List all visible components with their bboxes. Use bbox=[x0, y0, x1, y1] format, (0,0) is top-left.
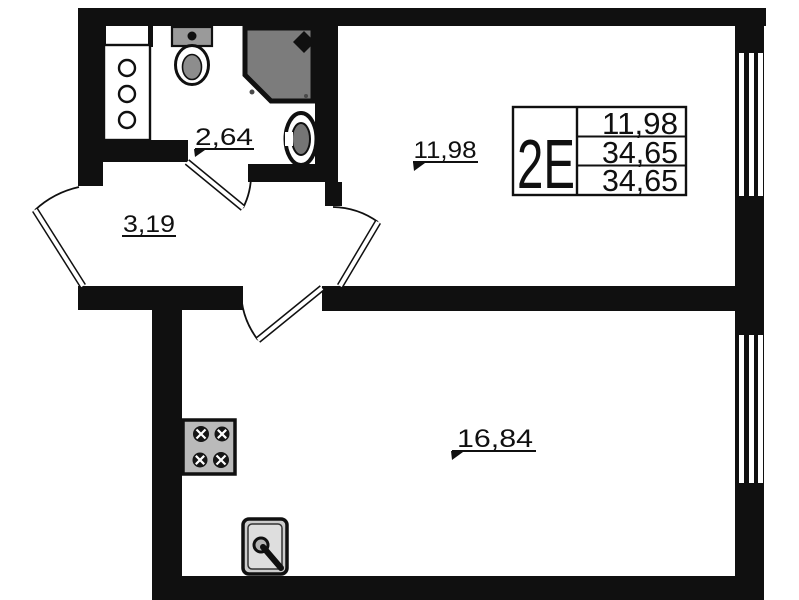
wall-door-stub bbox=[325, 182, 342, 206]
kitchen-sink-icon bbox=[243, 519, 287, 574]
door-leaf-inner bbox=[35, 210, 83, 286]
stove-body bbox=[183, 420, 235, 474]
floor-plan: 2,64 3,19 11,98 16,84 2Е 11,98 34,65 34,… bbox=[0, 0, 799, 600]
room1-area-value: 11,98 bbox=[414, 137, 477, 164]
label-bathroom-area: 2,64 bbox=[194, 124, 254, 157]
toilet-tank-button bbox=[188, 32, 197, 41]
label-room2-area: 16,84 bbox=[451, 425, 536, 460]
shower-texture-dot bbox=[304, 94, 308, 98]
ventilation-shaft-icon bbox=[104, 45, 150, 140]
leader-arrow-icon bbox=[194, 149, 205, 157]
bathroom-door bbox=[187, 162, 251, 208]
door-leaf-inner bbox=[258, 288, 322, 340]
window-pane-line bbox=[739, 53, 744, 196]
toilet-icon bbox=[172, 27, 212, 85]
walls bbox=[78, 8, 766, 600]
door-swing-arc bbox=[333, 207, 378, 222]
leader-arrow-icon bbox=[451, 451, 463, 460]
door-swing-arc bbox=[241, 290, 258, 340]
shower-cabin-icon bbox=[245, 28, 315, 101]
burner bbox=[193, 453, 208, 468]
window-pane-line bbox=[749, 335, 754, 483]
label-hall-area: 3,19 bbox=[122, 211, 176, 238]
wall-hall-bottom bbox=[78, 286, 243, 310]
basin-bowl bbox=[292, 123, 310, 155]
wall-top bbox=[78, 8, 766, 26]
shower-texture-dot bbox=[250, 90, 255, 95]
basin-opening bbox=[285, 132, 293, 146]
label-room1-area: 11,98 bbox=[413, 137, 478, 171]
door-swing-arc bbox=[35, 187, 79, 210]
bathroom-area-value: 2,64 bbox=[195, 124, 253, 151]
wall-bathroom-right bbox=[315, 23, 338, 182]
leader-arrow-icon bbox=[413, 162, 425, 171]
floor-plan-canvas: 2,64 3,19 11,98 16,84 2Е 11,98 34,65 34,… bbox=[0, 0, 799, 600]
window-room2 bbox=[739, 335, 763, 483]
window-pane-line bbox=[749, 53, 754, 196]
room1-door bbox=[333, 207, 378, 286]
washbasin-icon bbox=[285, 113, 317, 165]
wall-bottom bbox=[152, 576, 764, 600]
shaft-hole bbox=[119, 60, 135, 76]
window-pane-line bbox=[758, 53, 763, 196]
wall-bathroom-bottom bbox=[78, 140, 188, 162]
window-pane-line bbox=[758, 335, 763, 483]
wall-under-basin bbox=[248, 164, 338, 182]
entrance-door bbox=[35, 187, 83, 286]
burner bbox=[193, 426, 209, 442]
window-pane-line bbox=[739, 335, 744, 483]
hall-area-value: 3,19 bbox=[123, 211, 175, 238]
wall-room-divider bbox=[322, 286, 736, 311]
room2-area-value: 16,84 bbox=[457, 425, 533, 453]
shaft-hole bbox=[119, 86, 135, 102]
shaft-notch bbox=[106, 26, 148, 46]
room2-door bbox=[241, 288, 322, 340]
shaft-hole bbox=[119, 112, 135, 128]
apartment-info-table: 2Е 11,98 34,65 34,65 bbox=[513, 106, 686, 203]
burner bbox=[215, 427, 230, 442]
apartment-type-value: 2Е bbox=[517, 125, 575, 203]
door-leaf-inner bbox=[187, 162, 243, 208]
toilet-bowl-inner bbox=[183, 55, 202, 80]
burner bbox=[213, 452, 229, 468]
stove-burners-icon bbox=[183, 420, 235, 474]
window-room1 bbox=[739, 53, 763, 196]
wall-kitchen-left bbox=[152, 310, 182, 600]
door-leaf-inner bbox=[340, 222, 378, 286]
table-row-value: 34,65 bbox=[602, 163, 678, 198]
